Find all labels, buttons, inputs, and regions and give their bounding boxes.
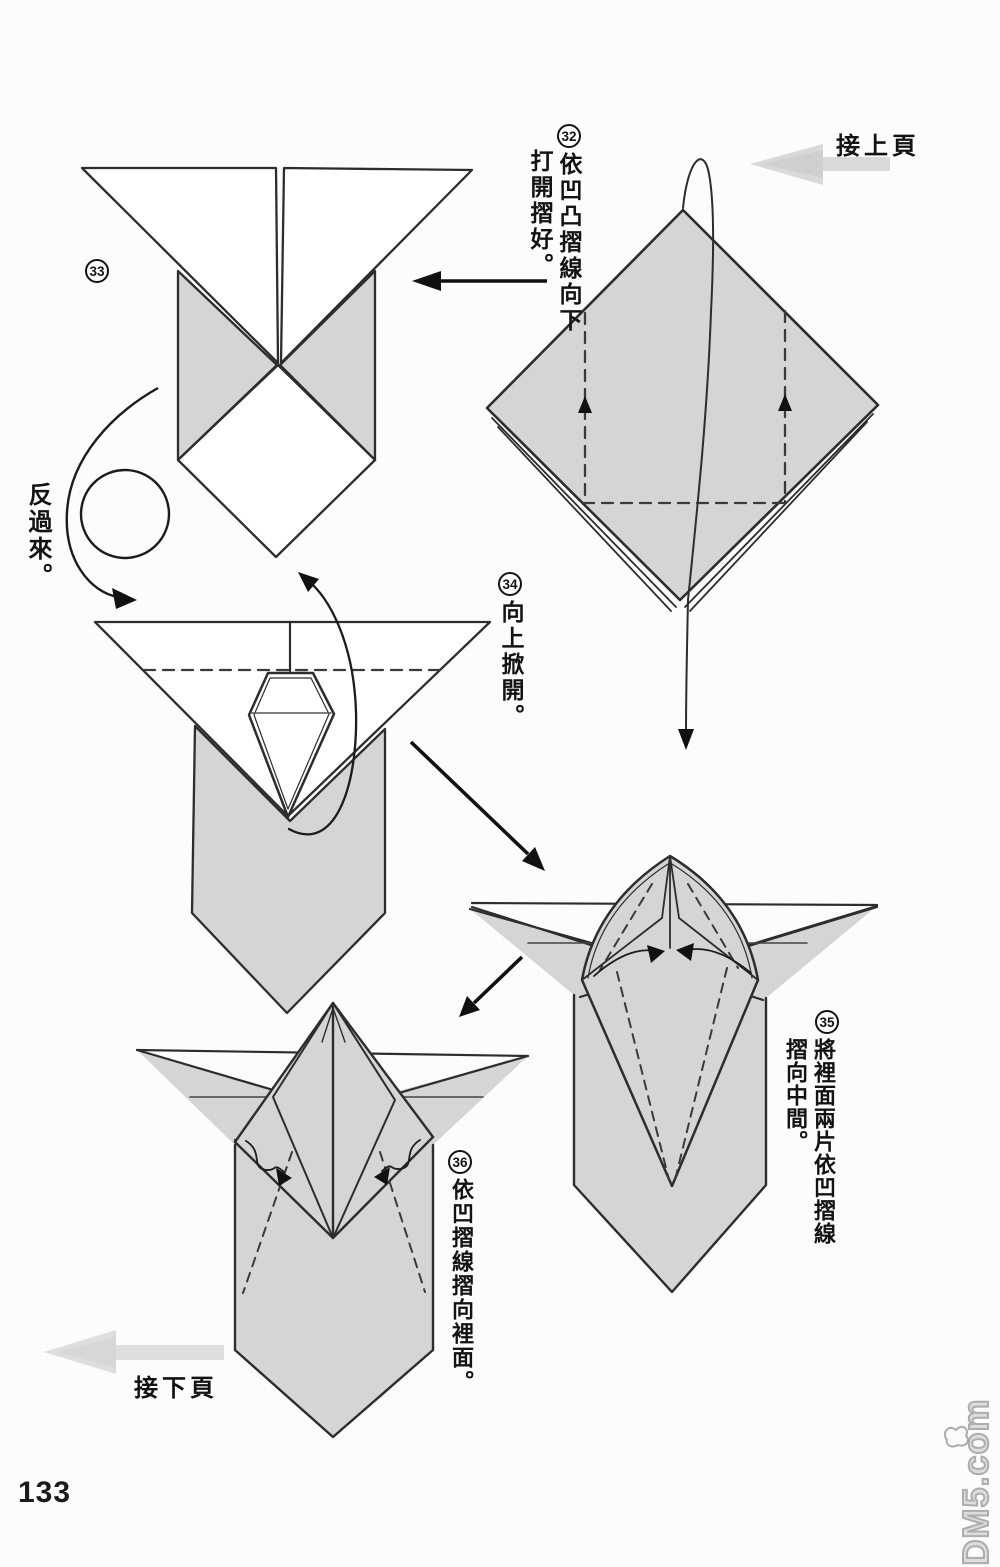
step-35-instruction-col2: 摺向中間。 <box>780 1038 810 1153</box>
step-36-instruction: 依凹摺線摺向裡面。 <box>446 1178 476 1394</box>
step-34-diagram <box>95 572 490 1013</box>
step-35-number: 35 <box>815 1010 839 1034</box>
step-33-diagram <box>82 168 472 557</box>
arrow-35-to-36-icon <box>459 957 522 1017</box>
watermark: DM5.com <box>955 1392 995 1567</box>
step-32-instruction-col1: 依凹凸摺線向下 <box>554 152 584 334</box>
flip-over-label: 反過來。 <box>22 482 52 590</box>
origami-book-page: 接上頁 32 依凹凸摺線向下 打開摺好。 33 反過來。 34 向上掀開。 35… <box>0 0 1000 1567</box>
step-36-number: 36 <box>448 1150 472 1174</box>
down-arrowhead <box>678 729 694 750</box>
arrow-34-to-35-icon <box>411 742 545 871</box>
step-33-number: 33 <box>85 259 109 283</box>
origami-diagrams-canvas <box>0 0 1000 1567</box>
step-32-number: 32 <box>557 124 581 148</box>
flip-over-icon <box>67 388 169 609</box>
page-number: 133 <box>18 1476 71 1510</box>
step-35-instruction-col1: 將裡面兩片依凹摺線 <box>808 1038 838 1245</box>
prev-page-label: 接上頁 <box>836 126 920 161</box>
step-34-instruction: 向上掀開。 <box>496 600 526 730</box>
next-page-label: 接下頁 <box>134 1368 218 1403</box>
step-32-instruction-col2: 打開摺好。 <box>525 149 555 279</box>
step-34-number: 34 <box>498 572 522 596</box>
